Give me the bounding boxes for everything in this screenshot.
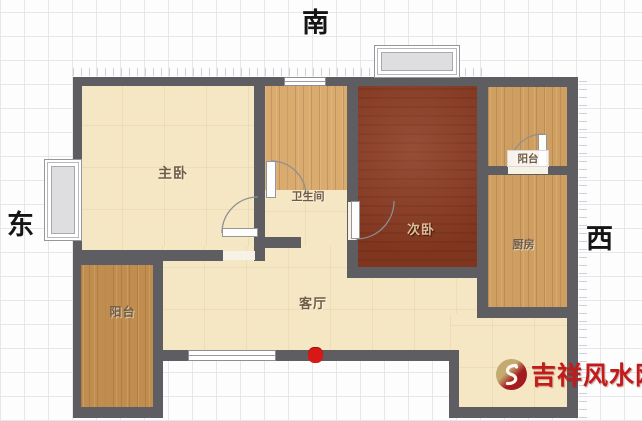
living-room-label: 客厅 — [283, 293, 343, 312]
balcony-bottom-left-floor — [81, 263, 154, 409]
watermark-site-name: 吉祥风水网 — [531, 356, 642, 392]
compass-south-label: 南 — [302, 10, 329, 37]
wall — [153, 255, 163, 418]
window-living-room — [188, 350, 276, 361]
wall — [481, 77, 578, 87]
balcony-top-right-label: 阳台 — [507, 150, 549, 167]
floorplan-canvas: 主卧 卫生间 次卧 阳台 厨房 阳台 客厅 南 东 西 吉祥风水网 — [0, 0, 642, 421]
wall — [347, 267, 488, 278]
wall — [481, 307, 578, 318]
second-bedroom-floor — [356, 84, 480, 270]
bay-window-glass — [381, 52, 453, 71]
bathroom-label: 卫生间 — [277, 188, 339, 204]
bay-window-glass — [51, 166, 75, 234]
wall — [263, 237, 301, 248]
wall — [449, 407, 578, 418]
door-leaf-second-bedroom — [351, 201, 360, 239]
bay-window-south — [374, 45, 460, 78]
window-bathroom — [284, 77, 326, 86]
entry-door-marker — [308, 347, 323, 363]
compass-west-label: 西 — [586, 226, 613, 253]
bay-window-west — [44, 159, 82, 241]
door-leaf-bathroom — [266, 161, 276, 198]
door-opening-balcony — [508, 167, 548, 174]
watermark-logo-icon — [495, 358, 528, 391]
compass-east-label: 东 — [7, 212, 34, 239]
door-leaf-master — [222, 228, 258, 237]
wall — [73, 77, 487, 86]
door-opening-master — [223, 251, 255, 260]
wall — [73, 255, 81, 418]
wall — [347, 77, 358, 278]
wall — [73, 407, 163, 418]
wall — [73, 255, 163, 265]
balcony-bottom-left-label: 阳台 — [95, 303, 150, 320]
second-bedroom-label: 次卧 — [391, 219, 451, 238]
kitchen-label: 厨房 — [496, 236, 551, 252]
master-bedroom-label: 主卧 — [138, 163, 208, 183]
wall — [477, 84, 488, 318]
watermark: 吉祥风水网 — [495, 356, 642, 392]
